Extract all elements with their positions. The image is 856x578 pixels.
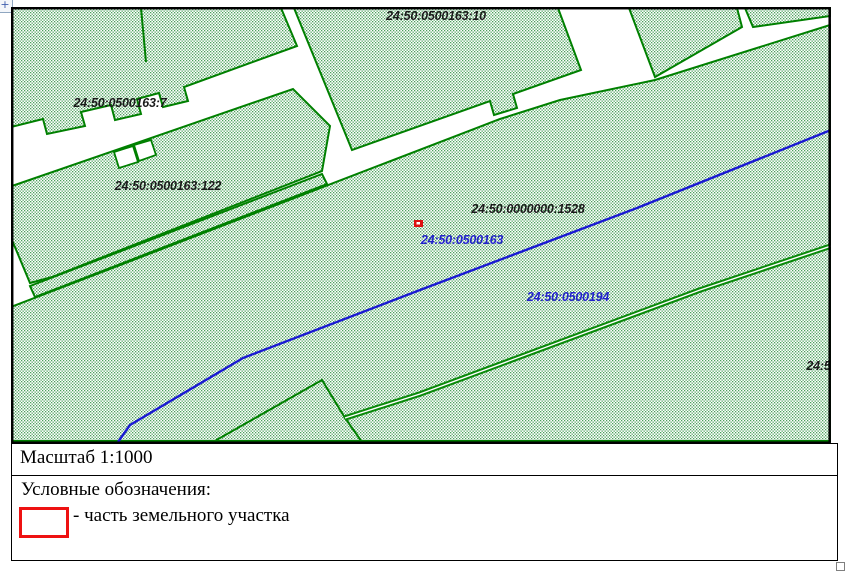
part-of-parcel-symbol [19,507,69,538]
legend-title: Условные обозначения: [21,479,211,501]
parcel-label: 24:50:0500163:122 [114,179,222,193]
legend-item-label: - часть земельного участка [73,505,290,527]
object-resize-handle[interactable] [836,562,845,571]
scale-row: Масштаб 1:1000 [11,443,838,476]
parcel-label: 24:50:0500194 [526,290,609,304]
scale-text: Масштаб 1:1000 [20,447,153,469]
parcel-top-right-b [745,8,830,27]
parcel-label: 24:50:0500163:7 [73,96,168,110]
map-area: 24:50:0500163:1024:50:0500163:724:50:050… [11,7,831,444]
parcel-label: 24:50:0000000:1528 [470,202,584,216]
cadastral-map: 24:50:0500163:1024:50:0500163:724:50:050… [11,7,831,444]
parcel-label: 24:50:0500163 [420,233,503,247]
part-of-parcel-marker-center [417,222,421,225]
legend-row: Условные обозначения: - часть земельного… [11,475,838,561]
cadastral-plan-page: + [0,0,856,578]
parcel-label: 24:50:0500163:10 [385,9,486,23]
parcel-label: 24:50:050 [805,359,831,373]
